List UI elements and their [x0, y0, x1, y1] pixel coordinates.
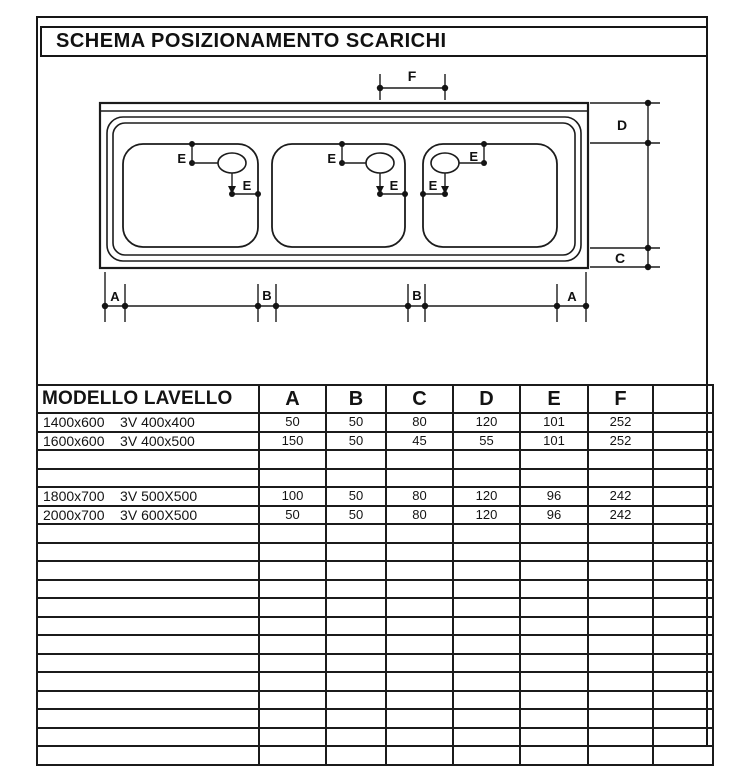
model-cell	[37, 617, 259, 636]
value-cell	[453, 654, 520, 673]
table-row	[37, 654, 713, 673]
table-row	[37, 746, 713, 765]
value-cell	[520, 654, 588, 673]
value-cell	[386, 635, 453, 654]
value-cell	[326, 598, 386, 617]
table-row	[37, 728, 713, 747]
header-col-f: F	[588, 385, 653, 413]
dim-label-e: E	[469, 149, 478, 164]
value-cell: 120	[453, 506, 520, 525]
value-cell: 45	[386, 432, 453, 451]
value-cell	[386, 580, 453, 599]
value-cell	[588, 746, 653, 765]
dim-label-a: A	[110, 289, 120, 304]
value-cell	[520, 543, 588, 562]
dim-e-left-basin: E E	[177, 141, 261, 197]
value-cell	[453, 598, 520, 617]
value-cell: 96	[520, 506, 588, 525]
drain-icon-right	[431, 153, 459, 173]
value-cell	[520, 691, 588, 710]
value-cell: 101	[520, 432, 588, 451]
empty-cell	[653, 617, 713, 636]
value-cell	[326, 450, 386, 469]
value-cell	[259, 672, 326, 691]
value-cell	[386, 709, 453, 728]
value-cell	[588, 654, 653, 673]
table-row	[37, 709, 713, 728]
value-cell: 50	[259, 506, 326, 525]
value-cell	[520, 635, 588, 654]
model-cell	[37, 654, 259, 673]
empty-cell	[653, 709, 713, 728]
value-cell	[588, 617, 653, 636]
model-cell	[37, 672, 259, 691]
value-cell	[326, 654, 386, 673]
value-cell	[453, 746, 520, 765]
empty-cell	[653, 580, 713, 599]
empty-cell	[653, 728, 713, 747]
value-cell	[326, 672, 386, 691]
value-cell	[386, 598, 453, 617]
empty-cell	[653, 561, 713, 580]
value-cell	[520, 617, 588, 636]
value-cell	[326, 469, 386, 488]
model-cell	[37, 561, 259, 580]
value-cell	[520, 746, 588, 765]
value-cell	[259, 728, 326, 747]
table-row	[37, 635, 713, 654]
header-extra-cell	[653, 385, 713, 413]
value-cell	[326, 635, 386, 654]
empty-cell	[653, 598, 713, 617]
basin-center	[272, 144, 405, 247]
empty-cell	[653, 691, 713, 710]
value-cell: 80	[386, 487, 453, 506]
header-model-cell: MODELLO LAVELLO	[37, 385, 259, 413]
empty-cell	[653, 524, 713, 543]
value-cell	[453, 561, 520, 580]
spec-table: MODELLO LAVELLOABCDEF 1400x600 3V 400x40…	[36, 384, 712, 766]
value-cell	[588, 543, 653, 562]
table-row	[37, 450, 713, 469]
value-cell: 101	[520, 413, 588, 432]
table-row	[37, 580, 713, 599]
table-row	[37, 469, 713, 488]
value-cell	[588, 580, 653, 599]
value-cell	[259, 709, 326, 728]
value-cell	[326, 543, 386, 562]
value-cell: 120	[453, 413, 520, 432]
value-cell: 100	[259, 487, 326, 506]
value-cell	[453, 691, 520, 710]
value-cell	[588, 635, 653, 654]
dim-label-e: E	[243, 178, 252, 193]
drain-icon-left	[218, 153, 246, 173]
value-cell	[588, 598, 653, 617]
value-cell: 80	[386, 506, 453, 525]
value-cell: 50	[326, 487, 386, 506]
empty-cell	[653, 450, 713, 469]
value-cell	[588, 524, 653, 543]
model-cell	[37, 580, 259, 599]
table-row	[37, 691, 713, 710]
empty-cell	[653, 413, 713, 432]
basin-left	[123, 144, 258, 247]
spec-table-body: 1400x600 3V 400x4005050801201012521600x6…	[37, 413, 713, 765]
value-cell	[259, 598, 326, 617]
model-cell	[37, 709, 259, 728]
value-cell	[588, 728, 653, 747]
value-cell	[326, 746, 386, 765]
value-cell	[326, 561, 386, 580]
table-row	[37, 617, 713, 636]
value-cell	[453, 635, 520, 654]
model-cell: 1800x700 3V 500X500	[37, 487, 259, 506]
value-cell	[453, 524, 520, 543]
value-cell	[588, 709, 653, 728]
value-cell	[588, 450, 653, 469]
model-cell: 1600x600 3V 400x500	[37, 432, 259, 451]
value-cell	[259, 617, 326, 636]
value-cell	[259, 691, 326, 710]
model-cell: 2000x700 3V 600X500	[37, 506, 259, 525]
drain-icon-center	[366, 153, 394, 173]
value-cell	[520, 524, 588, 543]
dim-f: F	[377, 68, 448, 100]
value-cell	[588, 561, 653, 580]
value-cell	[520, 469, 588, 488]
header-col-d: D	[453, 385, 520, 413]
dim-label-d: D	[617, 117, 627, 133]
model-cell	[37, 450, 259, 469]
header-col-b: B	[326, 385, 386, 413]
value-cell	[386, 524, 453, 543]
value-cell: 96	[520, 487, 588, 506]
empty-cell	[653, 654, 713, 673]
empty-cell	[653, 432, 713, 451]
empty-cell	[653, 506, 713, 525]
value-cell	[326, 580, 386, 599]
value-cell	[386, 617, 453, 636]
value-cell	[386, 561, 453, 580]
empty-cell	[653, 469, 713, 488]
dim-label-e: E	[327, 151, 336, 166]
value-cell	[453, 709, 520, 728]
value-cell	[453, 450, 520, 469]
value-cell	[386, 469, 453, 488]
empty-cell	[653, 543, 713, 562]
empty-cell	[653, 672, 713, 691]
value-cell	[326, 691, 386, 710]
spec-table-header: MODELLO LAVELLOABCDEF	[37, 385, 713, 413]
value-cell	[386, 746, 453, 765]
value-cell: 50	[326, 506, 386, 525]
table-row	[37, 561, 713, 580]
header-col-e: E	[520, 385, 588, 413]
value-cell	[588, 469, 653, 488]
dim-label-e: E	[429, 178, 438, 193]
value-cell	[520, 450, 588, 469]
value-cell	[259, 580, 326, 599]
header-col-a: A	[259, 385, 326, 413]
empty-cell	[653, 635, 713, 654]
value-cell	[386, 691, 453, 710]
model-cell	[37, 598, 259, 617]
table-row	[37, 524, 713, 543]
value-cell	[453, 617, 520, 636]
value-cell	[520, 598, 588, 617]
value-cell	[453, 580, 520, 599]
value-cell	[520, 561, 588, 580]
value-cell	[259, 654, 326, 673]
model-cell	[37, 746, 259, 765]
value-cell: 50	[326, 432, 386, 451]
value-cell: 150	[259, 432, 326, 451]
value-cell	[259, 746, 326, 765]
value-cell	[326, 524, 386, 543]
value-cell	[326, 709, 386, 728]
value-cell: 242	[588, 506, 653, 525]
value-cell: 50	[259, 413, 326, 432]
value-cell	[386, 543, 453, 562]
value-cell	[259, 450, 326, 469]
value-cell	[259, 635, 326, 654]
dim-a-b: A B B A	[102, 272, 589, 322]
dim-d-c: D C	[590, 100, 660, 270]
value-cell	[520, 709, 588, 728]
empty-cell	[653, 487, 713, 506]
table-row	[37, 598, 713, 617]
dim-label-c: C	[615, 250, 625, 266]
empty-cell	[653, 746, 713, 765]
dim-label-b: B	[412, 288, 421, 303]
table-row	[37, 543, 713, 562]
table-row: 2000x700 3V 600X50050508012096242	[37, 506, 713, 525]
value-cell	[520, 672, 588, 691]
value-cell	[386, 654, 453, 673]
value-cell: 252	[588, 413, 653, 432]
dim-label-a: A	[567, 289, 577, 304]
value-cell: 252	[588, 432, 653, 451]
value-cell	[453, 672, 520, 691]
table-row: 1600x600 3V 400x500150504555101252	[37, 432, 713, 451]
model-cell	[37, 728, 259, 747]
dim-label-b: B	[262, 288, 271, 303]
value-cell	[386, 672, 453, 691]
table-row	[37, 672, 713, 691]
sink-outline	[100, 103, 588, 268]
model-cell	[37, 543, 259, 562]
model-cell	[37, 524, 259, 543]
value-cell	[453, 469, 520, 488]
value-cell	[259, 524, 326, 543]
value-cell	[588, 672, 653, 691]
value-cell	[259, 561, 326, 580]
table-row: 1400x600 3V 400x400505080120101252	[37, 413, 713, 432]
value-cell	[520, 728, 588, 747]
model-cell: 1400x600 3V 400x400	[37, 413, 259, 432]
value-cell	[326, 728, 386, 747]
value-cell	[386, 728, 453, 747]
header-row: MODELLO LAVELLOABCDEF	[37, 385, 713, 413]
table-row: 1800x700 3V 500X500100508012096242	[37, 487, 713, 506]
value-cell: 242	[588, 487, 653, 506]
dim-label-e: E	[390, 178, 399, 193]
value-cell: 120	[453, 487, 520, 506]
value-cell: 80	[386, 413, 453, 432]
value-cell	[259, 543, 326, 562]
header-col-c: C	[386, 385, 453, 413]
value-cell: 55	[453, 432, 520, 451]
dim-label-e: E	[177, 151, 186, 166]
value-cell	[520, 580, 588, 599]
dim-label-f: F	[408, 68, 417, 84]
model-cell	[37, 635, 259, 654]
value-cell	[386, 450, 453, 469]
value-cell: 50	[326, 413, 386, 432]
value-cell	[453, 728, 520, 747]
model-cell	[37, 469, 259, 488]
value-cell	[259, 469, 326, 488]
model-cell	[37, 691, 259, 710]
scanned-datasheet-page: { "page": { "title": "SCHEMA POSIZIONAME…	[0, 0, 745, 746]
value-cell	[588, 691, 653, 710]
value-cell	[453, 543, 520, 562]
value-cell	[326, 617, 386, 636]
